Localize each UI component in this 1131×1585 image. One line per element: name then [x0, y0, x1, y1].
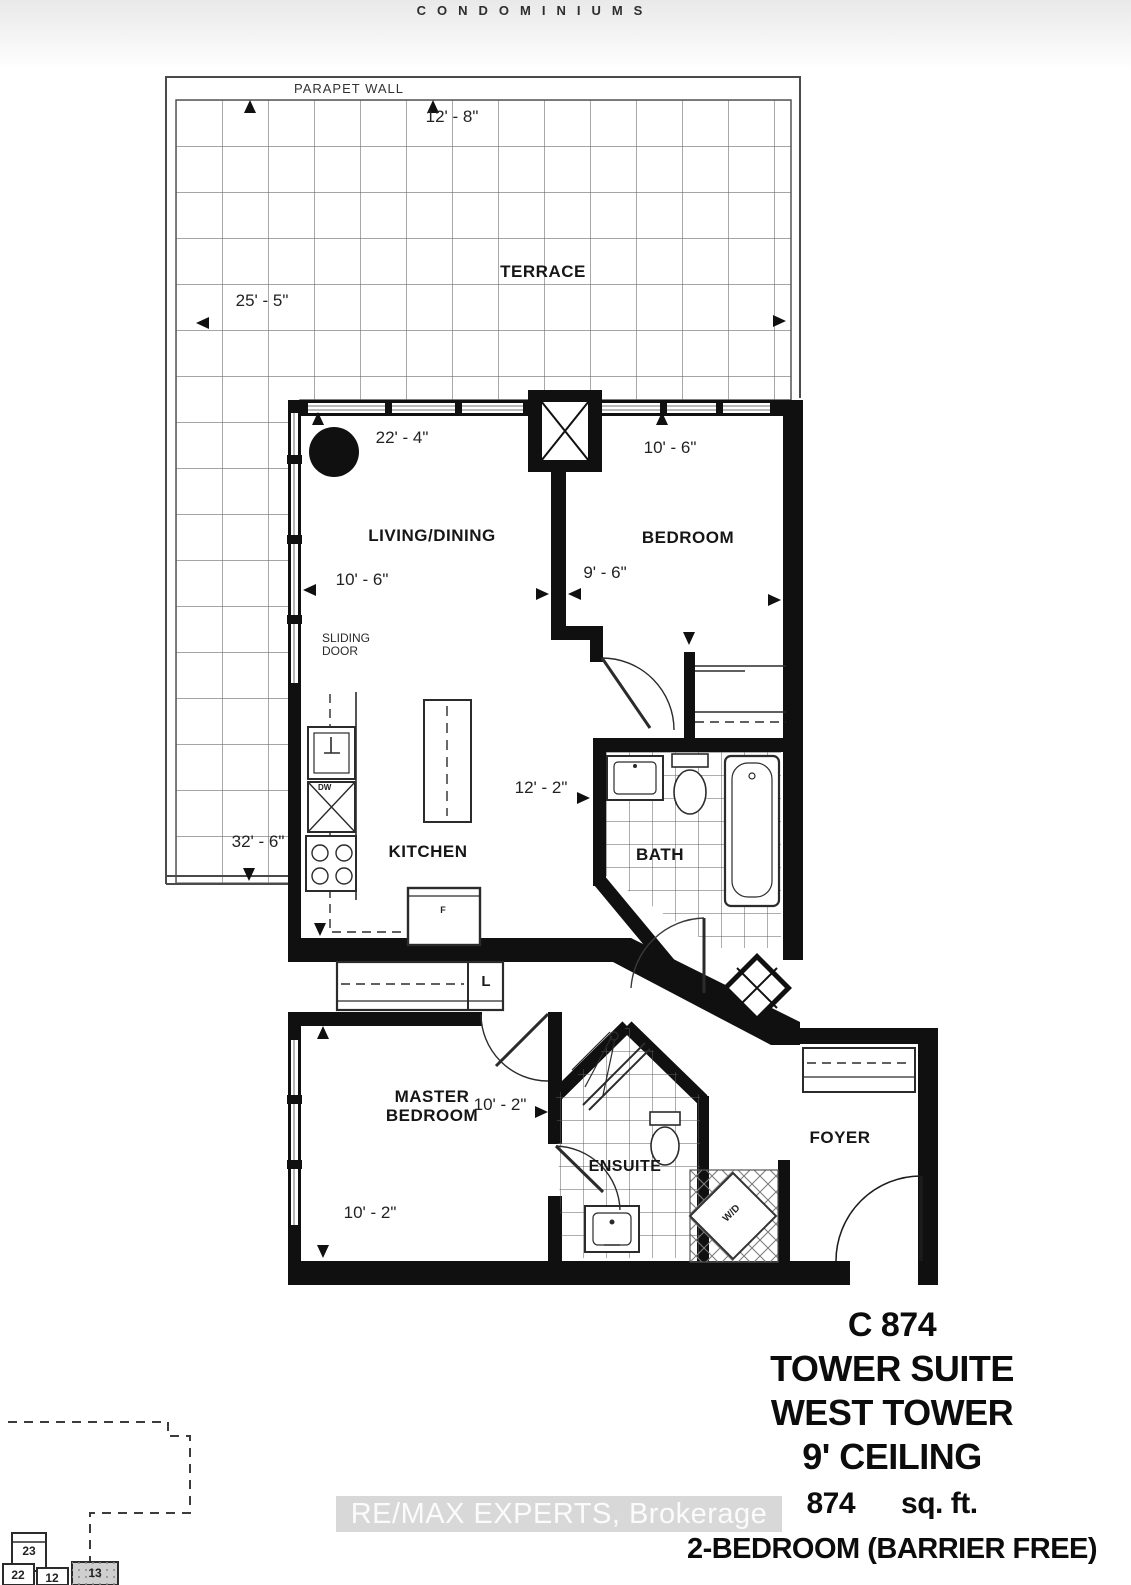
- keyplan-unit-13: 13: [88, 1567, 101, 1580]
- suite-layout: 2-BEDROOM (BARRIER FREE): [656, 1529, 1128, 1569]
- kitchen-sink: [308, 727, 355, 779]
- master-bedroom-label: MASTER BEDROOM: [386, 1087, 478, 1125]
- bedroom-label: BEDROOM: [642, 528, 734, 547]
- ensuite-room: [556, 1026, 700, 1258]
- toilet: [672, 754, 708, 814]
- ceiling-height: 9' CEILING: [656, 1435, 1128, 1479]
- master-depth-dim: 10' - 2": [344, 1203, 397, 1222]
- linen-label: L: [481, 974, 490, 991]
- bedroom-door: [602, 658, 674, 730]
- floorplan-page: CONDOMINIUMS PARAPET WALL 12' - 8" TERRA…: [0, 0, 1131, 1585]
- keyplan-unit-23: 23: [22, 1545, 35, 1558]
- fridge: [408, 888, 480, 945]
- terrace-left-dim: 25' - 5": [236, 291, 289, 310]
- parapet-wall-label: PARAPET WALL: [294, 82, 404, 97]
- ensuite-label: ENSUITE: [589, 1158, 662, 1176]
- bedroom-closet: [695, 666, 786, 722]
- terrace-bottom-dim: 32' - 6": [232, 832, 285, 851]
- linen-closet: [337, 962, 503, 1010]
- living-depth-dim: 10' - 6": [336, 570, 389, 589]
- living-width-dim: 22' - 4": [376, 428, 429, 447]
- bedroom-depth-dim: 9' - 6": [583, 563, 626, 582]
- area-unit: sq. ft.: [901, 1487, 978, 1520]
- duct-shaft-top: [528, 390, 602, 472]
- sliding-door-label: SLIDING DOOR: [322, 632, 370, 659]
- bath-sink: [607, 756, 663, 800]
- dishwasher-label: DW: [318, 784, 331, 793]
- terrace-label: TERRACE: [500, 262, 586, 281]
- hall-dim: 12' - 2": [515, 778, 568, 797]
- fridge-label: F: [440, 905, 446, 915]
- keyplan-unit-12: 12: [45, 1572, 58, 1585]
- suite-number: C 874: [656, 1303, 1128, 1347]
- key-plan: [3, 1422, 190, 1585]
- master-width-dim: 10' - 2": [474, 1095, 527, 1114]
- foyer-closet: [803, 1048, 915, 1092]
- stove: [306, 836, 356, 891]
- ensuite-sink: [585, 1206, 639, 1252]
- kitchen-label: KITCHEN: [388, 842, 467, 861]
- brokerage-watermark: RE/MAX EXPERTS, Brokerage: [336, 1496, 782, 1532]
- brand-wordmark: CONDOMINIUMS: [417, 4, 654, 19]
- tower-name: WEST TOWER: [656, 1391, 1128, 1435]
- foyer-label: FOYER: [809, 1128, 870, 1147]
- keyplan-unit-22: 22: [11, 1569, 24, 1582]
- master-bedroom-door: [481, 1014, 548, 1081]
- living-dining-label: LIVING/DINING: [368, 526, 495, 545]
- bedroom-width-dim: 10' - 6": [644, 438, 697, 457]
- dishwasher: [308, 782, 355, 832]
- area-value: 874: [806, 1487, 855, 1520]
- bath-label: BATH: [636, 845, 684, 864]
- terrace-width-dim: 12' - 8": [426, 107, 479, 126]
- entry-door: [836, 1176, 921, 1261]
- bathtub: [725, 756, 779, 906]
- kitchen-fixtures: [306, 692, 480, 945]
- suite-type: TOWER SUITE: [656, 1347, 1128, 1391]
- structural-column: [309, 427, 359, 477]
